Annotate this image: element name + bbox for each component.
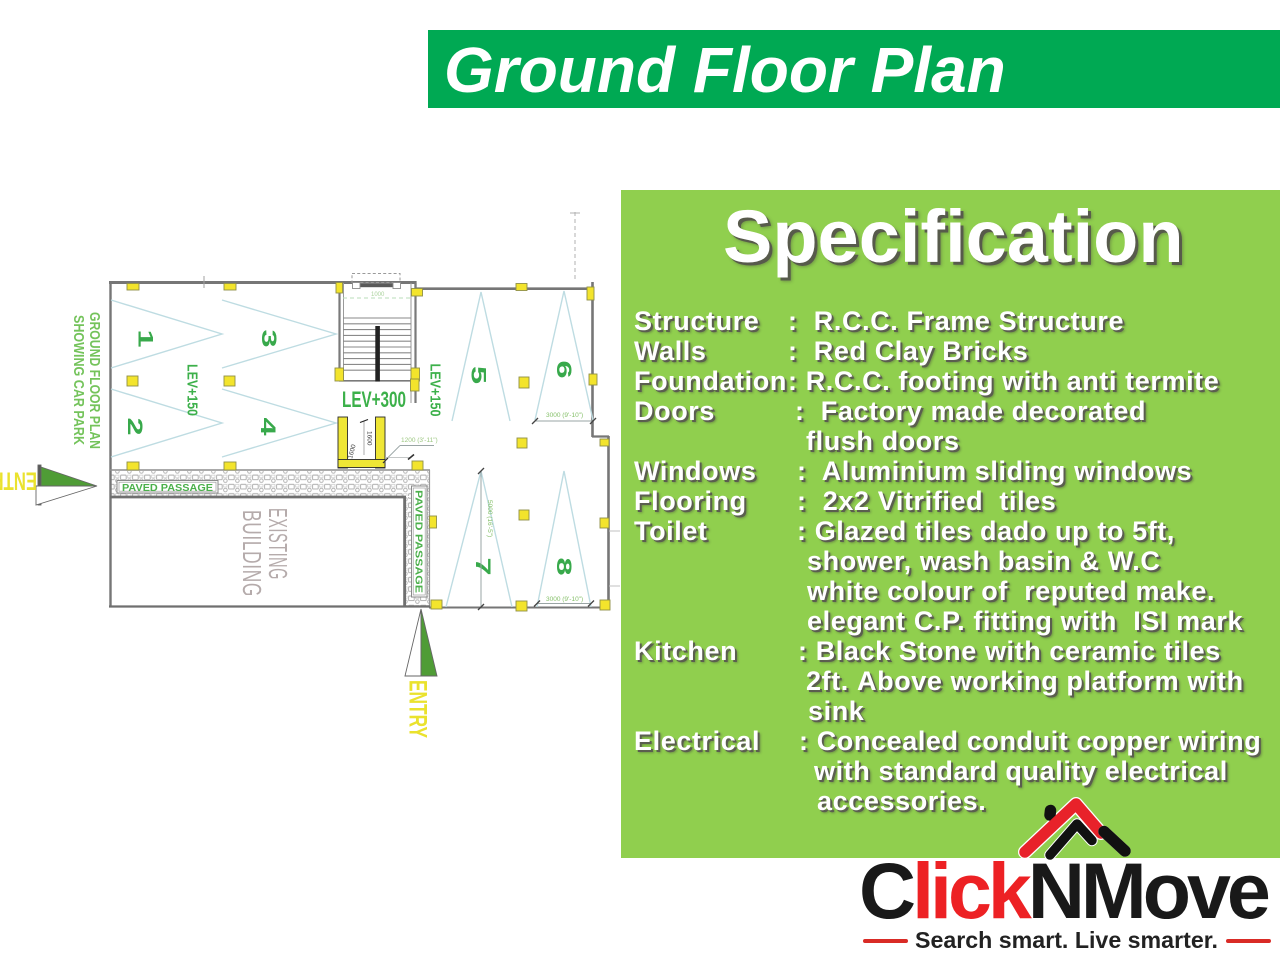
svg-text:4: 4 — [256, 417, 280, 436]
svg-text:GROUND FLOOR PLAN: GROUND FLOOR PLAN — [86, 312, 103, 449]
svg-text:LEV+150: LEV+150 — [184, 364, 201, 416]
svg-text:5000 (16'-5"): 5000 (16'-5") — [486, 500, 493, 537]
svg-text:BUILDING: BUILDING — [237, 510, 267, 597]
svg-text:1200 (3'-11"): 1200 (3'-11") — [401, 437, 438, 444]
svg-text:LEV+300: LEV+300 — [342, 387, 406, 412]
svg-text:7: 7 — [471, 557, 495, 575]
svg-text:PAVED PASSAGE: PAVED PASSAGE — [413, 490, 425, 593]
svg-text:1000: 1000 — [371, 292, 385, 298]
svg-text:ENTRY: ENTRY — [0, 467, 37, 495]
svg-text:1600: 1600 — [347, 443, 358, 459]
svg-text:PAVED PASSAGE: PAVED PASSAGE — [122, 482, 213, 494]
svg-text:5: 5 — [467, 366, 491, 384]
svg-text:1600: 1600 — [366, 431, 373, 446]
svg-text:3: 3 — [257, 329, 281, 347]
svg-text:1: 1 — [134, 329, 158, 347]
svg-text:3000 (9'-10"): 3000 (9'-10") — [546, 596, 583, 603]
svg-text:ENTRY: ENTRY — [404, 680, 432, 738]
svg-text:2: 2 — [123, 417, 147, 435]
svg-text:8: 8 — [552, 557, 576, 575]
svg-text:SHOWING CAR PARK: SHOWING CAR PARK — [70, 315, 87, 445]
svg-text:6: 6 — [552, 360, 576, 378]
svg-text:3000 (9'-10"): 3000 (9'-10") — [546, 412, 583, 419]
svg-text:LEV+150: LEV+150 — [427, 364, 444, 417]
